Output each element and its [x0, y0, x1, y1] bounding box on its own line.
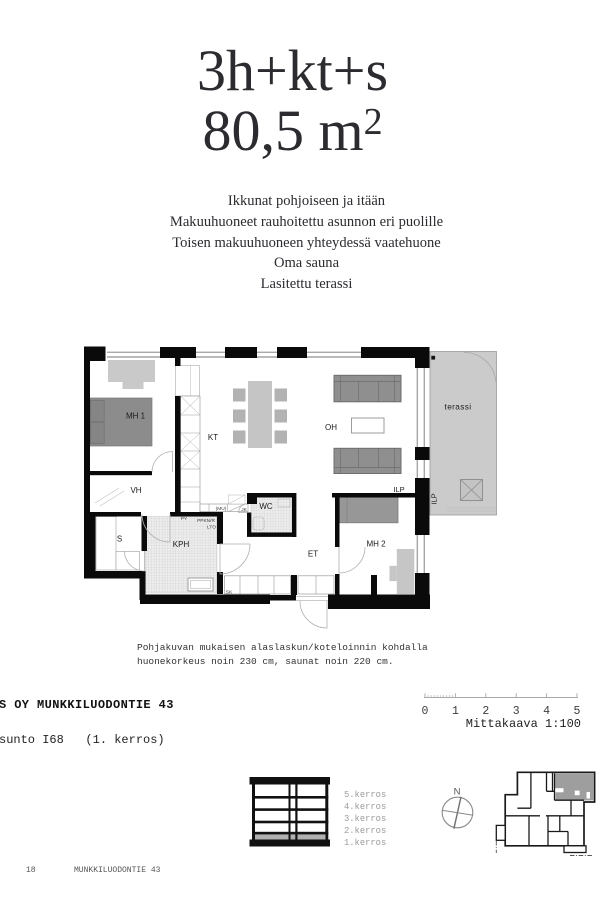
svg-text:MH 2: MH 2: [366, 540, 386, 549]
svg-text:S: S: [117, 535, 122, 544]
svg-text:terassi: terassi: [445, 403, 472, 412]
svg-text:JK: JK: [241, 507, 247, 513]
svg-text:4.kerros: 4.kerros: [344, 802, 386, 812]
svg-text:KPH: KPH: [173, 540, 190, 549]
svg-text:N: N: [454, 787, 461, 798]
svg-text:WC: WC: [259, 502, 273, 511]
svg-text:OH: OH: [325, 423, 337, 432]
svg-text:VH: VH: [130, 486, 141, 495]
svg-text:(MU): (MU): [216, 506, 227, 512]
svg-text:PPKN/R: PPKN/R: [197, 518, 215, 524]
svg-text:ILP: ILP: [393, 485, 404, 494]
svg-text:KT: KT: [208, 433, 218, 442]
svg-text:MH 1: MH 1: [126, 412, 146, 421]
svg-text:3.kerros: 3.kerros: [344, 814, 386, 824]
svg-text:1.kerros: 1.kerros: [344, 838, 386, 848]
svg-text:ILP: ILP: [430, 493, 439, 504]
svg-text:2.kerros: 2.kerros: [344, 826, 386, 836]
svg-text:SK: SK: [226, 590, 233, 596]
svg-text:ET: ET: [308, 550, 318, 559]
svg-text:LTO: LTO: [207, 525, 216, 531]
svg-text:5.kerros: 5.kerros: [344, 790, 386, 800]
svg-text:PY: PY: [181, 516, 188, 522]
